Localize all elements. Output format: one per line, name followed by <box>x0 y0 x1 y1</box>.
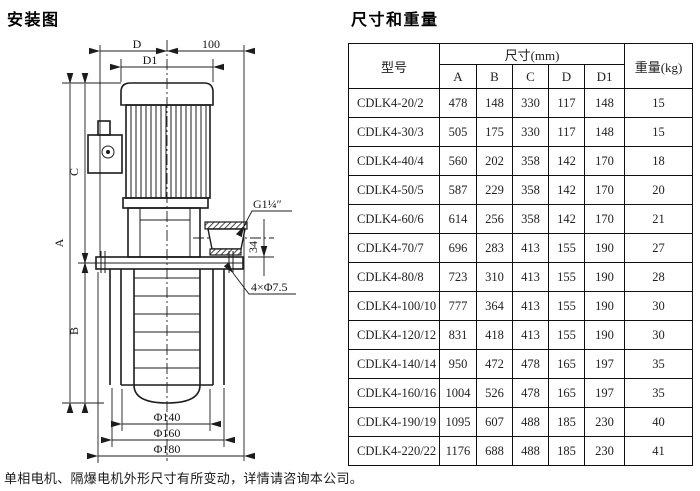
value-cell: 165 <box>549 379 585 408</box>
table-row: CDLK4-190/19109560748818523040 <box>349 408 693 437</box>
dim-label-34: 34 <box>246 241 260 253</box>
value-cell: 358 <box>513 205 549 234</box>
header-col-d1: D1 <box>585 65 625 89</box>
model-cell: CDLK4-80/8 <box>349 263 440 292</box>
value-cell: 283 <box>477 234 513 263</box>
value-cell: 190 <box>585 234 625 263</box>
table-row: CDLK4-220/22117668848818523041 <box>349 437 693 466</box>
value-cell: 607 <box>477 408 513 437</box>
dim-label-100: 100 <box>202 37 220 51</box>
value-cell: 330 <box>513 89 549 118</box>
value-cell: 413 <box>513 234 549 263</box>
pump-head-inner <box>140 208 190 257</box>
dim-label-d1: D1 <box>143 53 158 67</box>
value-cell: 35 <box>625 350 693 379</box>
value-cell: 142 <box>549 147 585 176</box>
dim-label-c: C <box>67 168 81 176</box>
dimensions-table-title: 尺寸和重量 <box>351 6 439 30</box>
dim-label-phi160: Φ160 <box>154 426 181 440</box>
motor-fins <box>131 105 206 198</box>
model-cell: CDLK4-60/6 <box>349 205 440 234</box>
pipe-bottom-flange <box>210 249 241 255</box>
table-header-row: 型号 尺寸(mm) 重量(kg) <box>349 44 693 65</box>
value-cell: 413 <box>513 321 549 350</box>
table-row: CDLK4-60/661425635814217021 <box>349 205 693 234</box>
value-cell: 688 <box>477 437 513 466</box>
value-cell: 148 <box>585 89 625 118</box>
dimensions-table: 型号 尺寸(mm) 重量(kg) A B C D D1 CDLK4-20/247… <box>348 43 693 466</box>
header-col-c: C <box>513 65 549 89</box>
value-cell: 117 <box>549 118 585 147</box>
value-cell: 170 <box>585 176 625 205</box>
value-cell: 15 <box>625 118 693 147</box>
table-row: CDLK4-120/1283141841315519030 <box>349 321 693 350</box>
value-cell: 614 <box>440 205 477 234</box>
value-cell: 587 <box>440 176 477 205</box>
value-cell: 165 <box>549 350 585 379</box>
value-cell: 202 <box>477 147 513 176</box>
value-cell: 30 <box>625 321 693 350</box>
dim-label-a: A <box>52 238 66 247</box>
value-cell: 27 <box>625 234 693 263</box>
motor-base-flange <box>123 198 208 208</box>
model-cell: CDLK4-100/10 <box>349 292 440 321</box>
value-cell: 310 <box>477 263 513 292</box>
header-size-group: 尺寸(mm) <box>440 44 625 65</box>
dim-label-phi140: Φ140 <box>154 410 181 424</box>
model-cell: CDLK4-40/4 <box>349 147 440 176</box>
value-cell: 18 <box>625 147 693 176</box>
value-cell: 148 <box>477 89 513 118</box>
value-cell: 478 <box>440 89 477 118</box>
value-cell: 478 <box>513 350 549 379</box>
value-cell: 148 <box>585 118 625 147</box>
header-col-d: D <box>549 65 585 89</box>
extension-lines <box>62 45 274 463</box>
value-cell: 950 <box>440 350 477 379</box>
value-cell: 190 <box>585 292 625 321</box>
value-cell: 155 <box>549 292 585 321</box>
model-cell: CDLK4-160/16 <box>349 379 440 408</box>
installation-diagram: D 100 D1 A C B 34 G1¼″ 4×Φ7.5 Φ140 Φ160 … <box>0 0 350 466</box>
footnote: 单相电机、隔爆电机外形尺寸有所变动，详情请咨询本公司。 <box>4 468 363 487</box>
value-cell: 185 <box>549 408 585 437</box>
value-cell: 35 <box>625 379 693 408</box>
value-cell: 256 <box>477 205 513 234</box>
value-cell: 330 <box>513 118 549 147</box>
value-cell: 229 <box>477 176 513 205</box>
value-cell: 418 <box>477 321 513 350</box>
value-cell: 478 <box>513 379 549 408</box>
table-row: CDLK4-20/247814833011714815 <box>349 89 693 118</box>
table-row: CDLK4-100/1077736441315519030 <box>349 292 693 321</box>
value-cell: 190 <box>585 263 625 292</box>
model-cell: CDLK4-30/3 <box>349 118 440 147</box>
value-cell: 358 <box>513 147 549 176</box>
dim-label-bolt-holes: 4×Φ7.5 <box>251 280 288 294</box>
dimension-lines <box>70 51 296 456</box>
value-cell: 30 <box>625 292 693 321</box>
model-cell: CDLK4-140/14 <box>349 350 440 379</box>
value-cell: 197 <box>585 350 625 379</box>
table-row: CDLK4-80/872331041315519028 <box>349 263 693 292</box>
model-cell: CDLK4-220/22 <box>349 437 440 466</box>
motor <box>88 83 213 208</box>
header-col-a: A <box>440 65 477 89</box>
value-cell: 230 <box>585 408 625 437</box>
value-cell: 28 <box>625 263 693 292</box>
value-cell: 230 <box>585 437 625 466</box>
value-cell: 142 <box>549 176 585 205</box>
value-cell: 117 <box>549 89 585 118</box>
value-cell: 1176 <box>440 437 477 466</box>
value-cell: 175 <box>477 118 513 147</box>
cable-entry-center <box>106 150 110 154</box>
value-cell: 472 <box>477 350 513 379</box>
motor-fin-body <box>126 105 210 198</box>
model-cell: CDLK4-50/5 <box>349 176 440 205</box>
value-cell: 190 <box>585 321 625 350</box>
value-cell: 41 <box>625 437 693 466</box>
value-cell: 40 <box>625 408 693 437</box>
table-row: CDLK4-160/16100452647816519735 <box>349 379 693 408</box>
value-cell: 831 <box>440 321 477 350</box>
value-cell: 20 <box>625 176 693 205</box>
value-cell: 560 <box>440 147 477 176</box>
model-cell: CDLK4-20/2 <box>349 89 440 118</box>
model-cell: CDLK4-190/19 <box>349 408 440 437</box>
value-cell: 155 <box>549 321 585 350</box>
discharge-pipe <box>208 229 245 249</box>
value-cell: 488 <box>513 437 549 466</box>
value-cell: 170 <box>585 205 625 234</box>
value-cell: 488 <box>513 408 549 437</box>
value-cell: 526 <box>477 379 513 408</box>
value-cell: 21 <box>625 205 693 234</box>
pump-head <box>128 208 247 257</box>
value-cell: 155 <box>549 263 585 292</box>
value-cell: 197 <box>585 379 625 408</box>
dim-label-b: B <box>67 327 81 335</box>
junction-box <box>88 135 122 173</box>
dim-label-g-thread: G1¼″ <box>253 197 282 211</box>
header-col-b: B <box>477 65 513 89</box>
value-cell: 696 <box>440 234 477 263</box>
table-row: CDLK4-30/350517533011714815 <box>349 118 693 147</box>
value-cell: 777 <box>440 292 477 321</box>
pipe-top-flange <box>205 222 247 229</box>
model-cell: CDLK4-120/12 <box>349 321 440 350</box>
dim-label-d: D <box>133 37 142 51</box>
header-weight: 重量(kg) <box>625 44 693 89</box>
datasheet-page: 安装图 尺寸和重量 <box>0 0 700 491</box>
value-cell: 15 <box>625 89 693 118</box>
value-cell: 155 <box>549 234 585 263</box>
value-cell: 364 <box>477 292 513 321</box>
leader-g-thread <box>244 211 292 226</box>
table-row: CDLK4-140/1495047247816519735 <box>349 350 693 379</box>
value-cell: 1004 <box>440 379 477 408</box>
dim-label-phi180: Φ180 <box>154 442 181 456</box>
value-cell: 170 <box>585 147 625 176</box>
value-cell: 505 <box>440 118 477 147</box>
table-row: CDLK4-40/456020235814217018 <box>349 147 693 176</box>
value-cell: 723 <box>440 263 477 292</box>
model-cell: CDLK4-70/7 <box>349 234 440 263</box>
header-model: 型号 <box>349 44 440 89</box>
value-cell: 142 <box>549 205 585 234</box>
table-row: CDLK4-50/558722935814217020 <box>349 176 693 205</box>
value-cell: 413 <box>513 292 549 321</box>
value-cell: 185 <box>549 437 585 466</box>
value-cell: 413 <box>513 263 549 292</box>
value-cell: 358 <box>513 176 549 205</box>
pump-head-frame <box>128 208 200 257</box>
value-cell: 1095 <box>440 408 477 437</box>
table-row: CDLK4-70/769628341315519027 <box>349 234 693 263</box>
